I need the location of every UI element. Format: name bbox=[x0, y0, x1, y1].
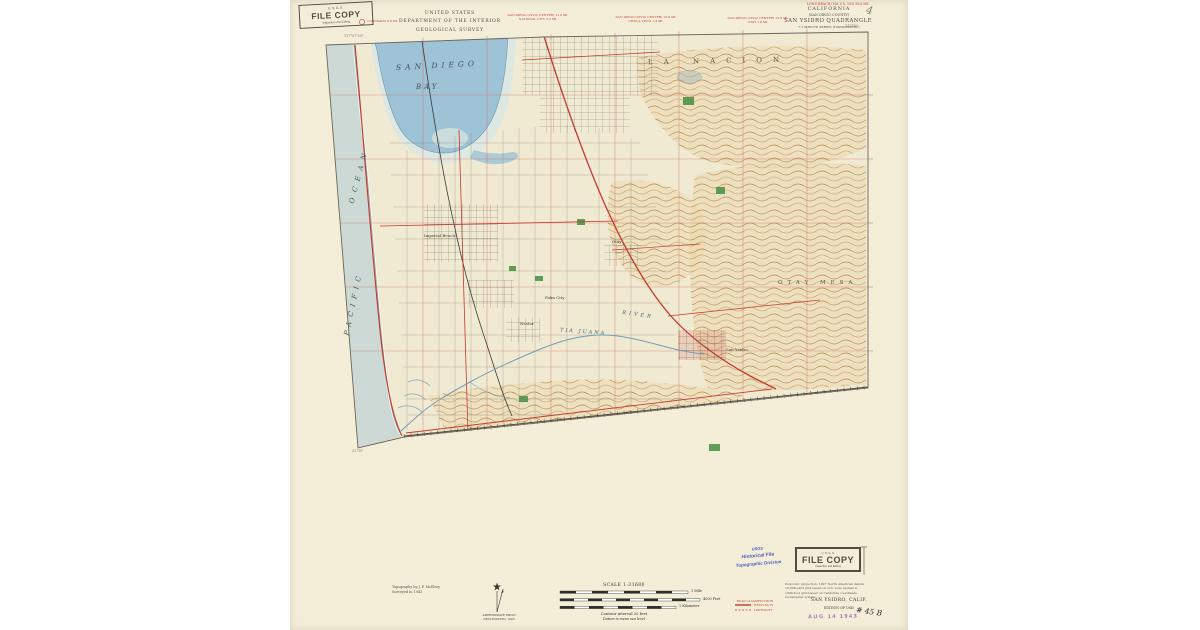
label-otay-mesa: OTAY MESA bbox=[778, 281, 857, 287]
topographic-map-artwork bbox=[0, 0, 1200, 630]
coord-bottom-left: 32°30' bbox=[352, 450, 363, 453]
declination-diagram bbox=[493, 583, 503, 613]
sheet-name: SAN YSIDRO, CALIF. bbox=[806, 599, 872, 604]
road-note-3-line2: OTAY 1.6 MI. bbox=[718, 20, 798, 24]
coord-top-left: 117°07'30" bbox=[344, 35, 363, 38]
file-copy-stamp-top: U. S. G. S. FILE COPY Inspection and Edi… bbox=[298, 1, 373, 29]
declination-line-2: DECLINATION, 1943 bbox=[477, 617, 521, 621]
label-san-ysidro: San Ysidro bbox=[726, 348, 748, 352]
scale-label: SCALE 1:31680 bbox=[592, 584, 656, 588]
agency-line-3: GEOLOGICAL SURVEY bbox=[392, 27, 508, 35]
label-nestor: Nestor bbox=[520, 322, 534, 326]
agency-line-1: UNITED STATES bbox=[392, 10, 508, 18]
contour-interval-note: Contour interval 25 feet bbox=[588, 612, 660, 616]
scale-feet-label: 4000 Feet bbox=[703, 598, 720, 601]
label-otay: Otay bbox=[612, 240, 622, 244]
declination-note: APPROXIMATE MEAN DECLINATION, 1943 bbox=[477, 613, 521, 621]
survey-credits: Topography by J. P. McElroy Surveyed in … bbox=[392, 585, 440, 595]
map-interior bbox=[320, 28, 872, 456]
label-imperial-beach: Imperial Beach bbox=[424, 234, 455, 238]
scale-km-label: 1 Kilometer bbox=[679, 605, 699, 608]
road-class-title: ROAD CLASSIFICATION bbox=[729, 600, 781, 603]
agency-line-2: DEPARTMENT OF THE INTERIOR bbox=[392, 18, 508, 26]
road-note-1-line2: NATIONAL CITY 2.2 MI. bbox=[498, 17, 578, 21]
road-class-item-2: LIGHT-DUTY bbox=[754, 609, 772, 612]
stamp-bottom-subtitle: Inspection and Editing bbox=[797, 565, 859, 568]
date-received-stamp: AUG 14 1943 bbox=[808, 614, 858, 620]
stamp-bottom-title: FILE COPY bbox=[797, 555, 859, 565]
scale-mile-label: 1 Mile bbox=[691, 590, 702, 593]
county-label: (SAN DIEGO COUNTY) bbox=[786, 14, 872, 17]
label-bay: BAY bbox=[416, 84, 440, 91]
road-note-3: SAN DIEGO (CIVIC CENTER) 13.8 MI. OTAY 1… bbox=[718, 16, 798, 25]
road-note-2-line2: CHULA VISTA 1.4 MI. bbox=[604, 19, 688, 23]
credit-line-2: Surveyed in 1943 bbox=[392, 590, 440, 595]
woodland-patch-south bbox=[709, 444, 720, 451]
header-agency-block: UNITED STATES DEPARTMENT OF THE INTERIOR… bbox=[392, 10, 508, 35]
road-class-legend-lines bbox=[735, 605, 751, 610]
road-note-1: SAN DIEGO (CIVIC CENTER) 11.6 MI. NATION… bbox=[498, 13, 578, 22]
coord-top-right: 117°00' bbox=[845, 25, 858, 28]
file-copy-stamp-bottom: U. S. G. S. FILE COPY Inspection and Edi… bbox=[795, 547, 861, 572]
pencil-bracket-mark bbox=[861, 547, 867, 575]
road-class-item-1: HEAVY-DUTY bbox=[754, 604, 773, 607]
label-palm-city: Palm City bbox=[545, 296, 564, 300]
datum-note: Datum is mean sea level bbox=[592, 618, 656, 621]
road-note-2: SAN DIEGO (CIVIC CENTER) 12.6 MI. CHULA … bbox=[604, 15, 688, 24]
series-label: 7.5 MINUTE SERIES (TOPOGRAPHIC) bbox=[786, 26, 872, 29]
